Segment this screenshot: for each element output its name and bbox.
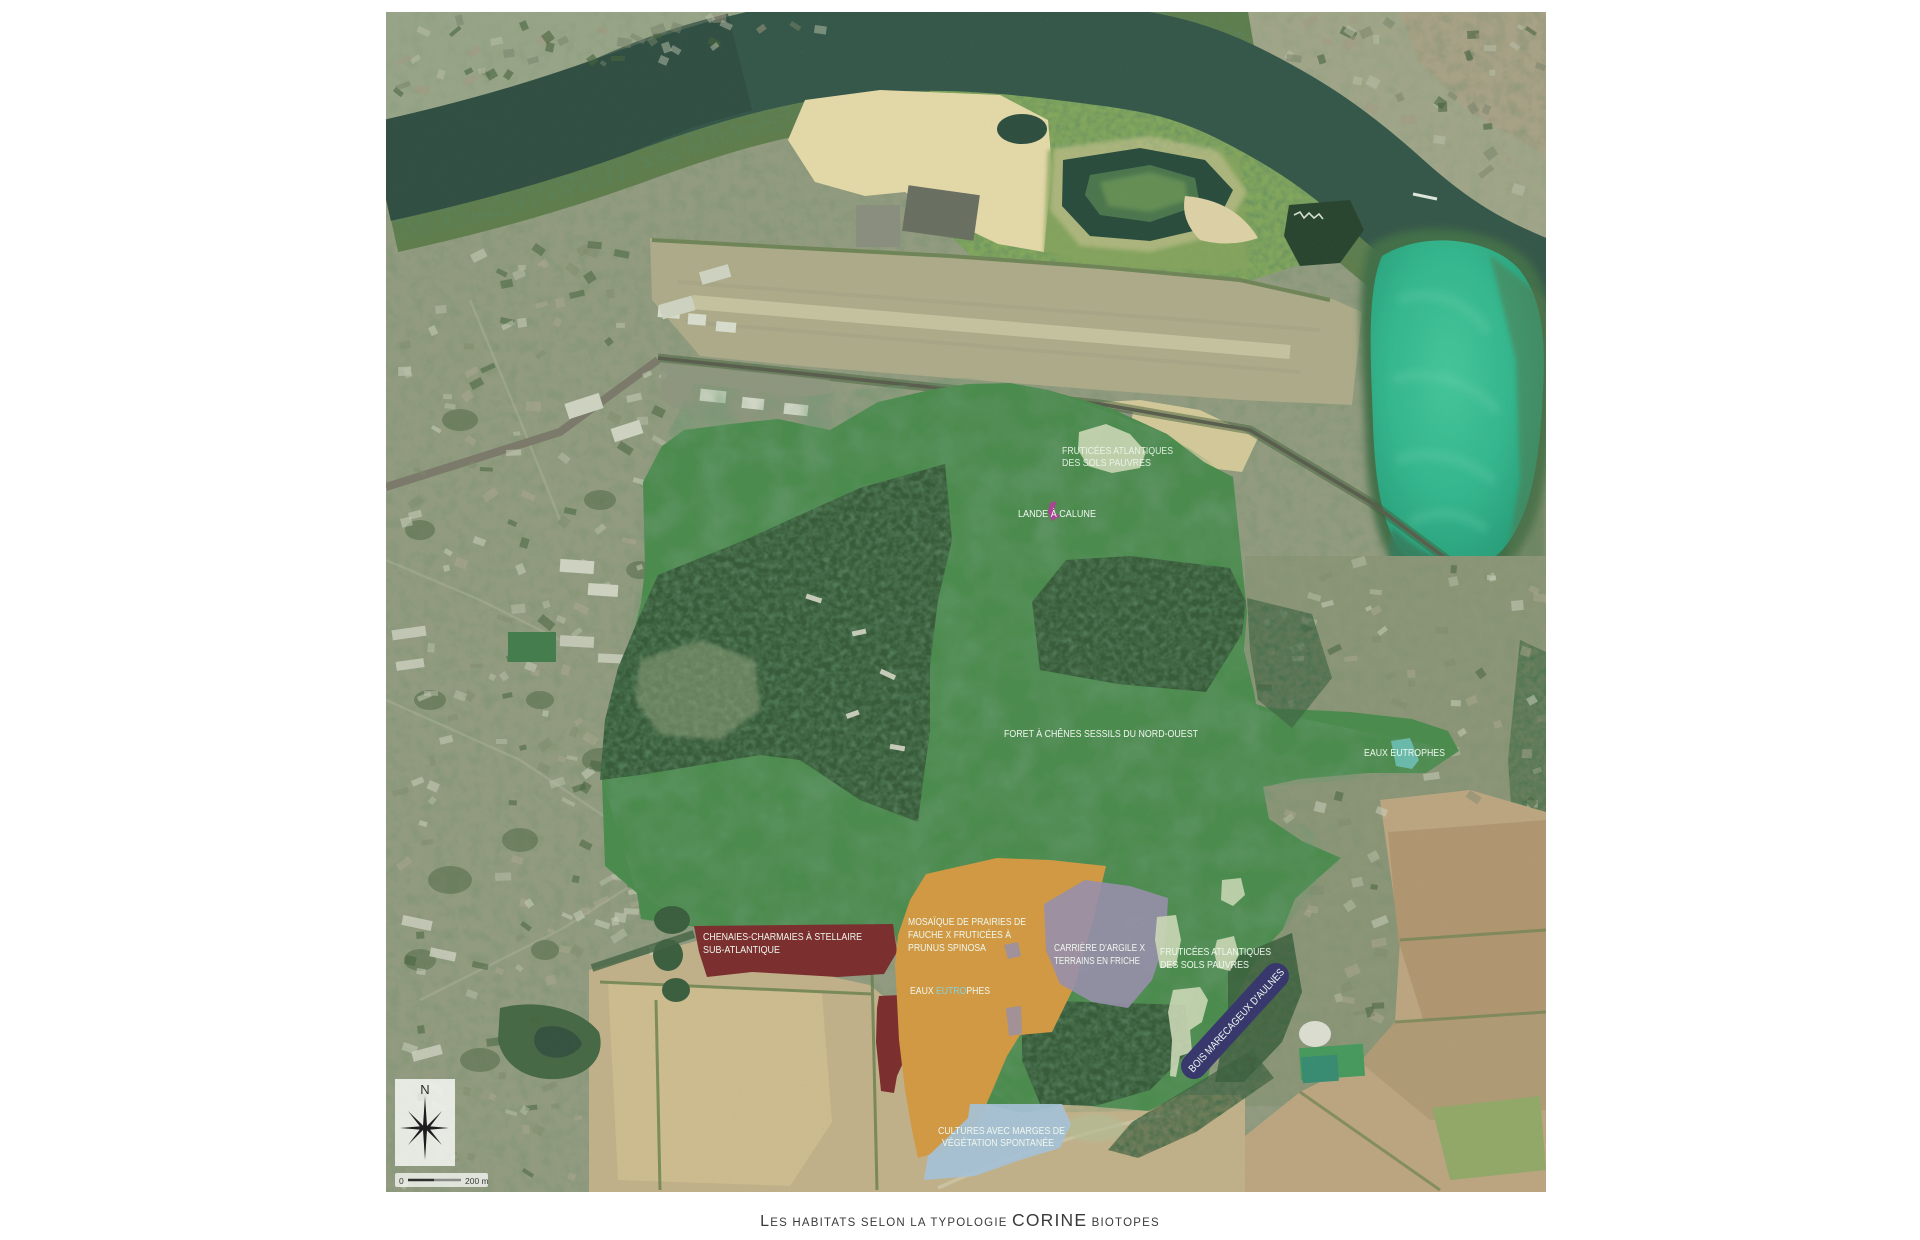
svg-text:N: N	[420, 1082, 429, 1097]
svg-text:CHENAIES-CHARMAIES À STELLAIRE: CHENAIES-CHARMAIES À STELLAIRE	[703, 930, 862, 943]
svg-text:FAUCHE X FRUTICÉES À: FAUCHE X FRUTICÉES À	[908, 928, 1011, 941]
svg-text:200 m: 200 m	[465, 1176, 489, 1186]
svg-text:MOSAÏQUE DE PRAIRIES DE: MOSAÏQUE DE PRAIRIES DE	[908, 916, 1026, 928]
svg-text:FORET À CHÊNES SESSILS DU NORD: FORET À CHÊNES SESSILS DU NORD-OUEST	[1004, 727, 1198, 740]
svg-text:CARRIÈRE D'ARGILE X: CARRIÈRE D'ARGILE X	[1054, 941, 1145, 954]
svg-text:VÉGÉTATION SPONTANÉE: VÉGÉTATION SPONTANÉE	[942, 1136, 1054, 1149]
svg-text:PRUNUS SPINOSA: PRUNUS SPINOSA	[908, 942, 986, 954]
svg-text:0: 0	[399, 1176, 404, 1186]
svg-text:CULTURES AVEC MARGES DE: CULTURES AVEC MARGES DE	[938, 1125, 1065, 1137]
svg-text:EAUX EUTROPHES: EAUX EUTROPHES	[1364, 747, 1445, 759]
svg-text:TERRAINS EN FRICHE: TERRAINS EN FRICHE	[1054, 955, 1140, 967]
svg-text:FRUTICÉES ATLANTIQUES: FRUTICÉES ATLANTIQUES	[1062, 444, 1173, 457]
svg-text:SUB-ATLANTIQUE: SUB-ATLANTIQUE	[703, 944, 780, 956]
svg-text:DES SOLS PAUVRES: DES SOLS PAUVRES	[1160, 959, 1249, 971]
svg-text:FRUTICÉES ATLANTIQUES: FRUTICÉES ATLANTIQUES	[1160, 945, 1271, 958]
svg-text:DES SOLS PAUVRES: DES SOLS PAUVRES	[1062, 457, 1151, 469]
svg-text:LANDE À CALUNE: LANDE À CALUNE	[1018, 507, 1096, 520]
svg-text:EAUX EUTROPHES: EAUX EUTROPHES	[910, 985, 990, 997]
